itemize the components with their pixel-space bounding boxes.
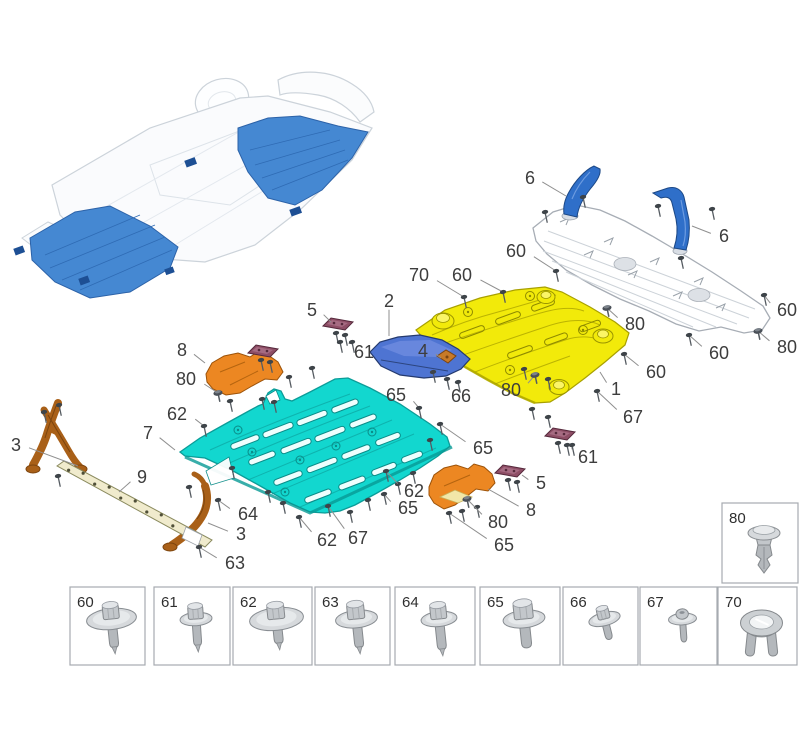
- callout-4[interactable]: 4: [418, 341, 428, 361]
- fastener-box-label: 62: [240, 594, 257, 611]
- leader-line: [542, 182, 566, 196]
- screw-icon: [620, 351, 629, 365]
- screw-icon: [285, 374, 294, 388]
- screw-icon: [544, 414, 553, 428]
- callout-6[interactable]: 6: [719, 226, 729, 246]
- fastener-box-60[interactable]: 60: [70, 587, 145, 665]
- fastener-box-63[interactable]: 63: [315, 587, 390, 665]
- callout-67[interactable]: 67: [623, 407, 643, 427]
- callout-70[interactable]: 70: [409, 265, 429, 285]
- screw-icon: [513, 479, 522, 493]
- screw-icon: [760, 292, 769, 306]
- callout-5[interactable]: 5: [536, 473, 546, 493]
- callout-60[interactable]: 60: [709, 343, 729, 363]
- callout-1[interactable]: 1: [611, 379, 621, 399]
- fastener-box-67[interactable]: 67: [640, 587, 717, 665]
- callout-63[interactable]: 63: [225, 553, 245, 573]
- callout-60[interactable]: 60: [777, 300, 797, 320]
- callout-8[interactable]: 8: [177, 340, 187, 360]
- fastener-box-62[interactable]: 62: [233, 587, 312, 665]
- callout-65[interactable]: 65: [494, 535, 514, 555]
- callout-67[interactable]: 67: [348, 528, 368, 548]
- callout-62[interactable]: 62: [167, 404, 187, 424]
- screw-icon: [568, 442, 577, 456]
- callout-8[interactable]: 8: [526, 500, 536, 520]
- leader-line: [119, 482, 130, 492]
- fastener-box-label: 64: [402, 594, 419, 611]
- screw-icon: [214, 497, 223, 511]
- fastener-box-70[interactable]: 70: [718, 587, 797, 665]
- callout-6[interactable]: 6: [525, 168, 535, 188]
- screw-icon: [336, 339, 345, 353]
- callout-7[interactable]: 7: [143, 423, 153, 443]
- screw-icon: [504, 477, 513, 491]
- leader-line: [600, 372, 607, 383]
- fastener-box-label: 66: [570, 594, 587, 611]
- fastener-box-label: 61: [161, 594, 178, 611]
- screw-icon: [445, 510, 454, 524]
- screw-icon: [226, 398, 235, 412]
- callout-60[interactable]: 60: [646, 362, 666, 382]
- callout-62[interactable]: 62: [317, 530, 337, 550]
- callout-5[interactable]: 5: [307, 300, 317, 320]
- screw-icon: [346, 509, 355, 523]
- callout-64[interactable]: 64: [238, 504, 258, 524]
- callout-65[interactable]: 65: [473, 438, 493, 458]
- callout-61[interactable]: 61: [578, 447, 598, 467]
- fastener-box-64[interactable]: 64: [395, 587, 475, 665]
- leader-line: [488, 489, 519, 506]
- screw-icon: [54, 473, 63, 487]
- fastener-box-61[interactable]: 61: [154, 587, 230, 665]
- part-8-bracket-orange-right: [429, 464, 495, 509]
- screw-icon: [341, 332, 350, 346]
- fastener-box-80[interactable]: 80: [722, 503, 798, 583]
- callout-2[interactable]: 2: [384, 291, 394, 311]
- screw-icon: [654, 203, 663, 217]
- leader-line: [522, 475, 528, 480]
- screw-icon: [308, 365, 317, 379]
- screw-icon: [708, 206, 717, 220]
- part-3-bracket-brown-left: [26, 403, 87, 473]
- callout-3[interactable]: 3: [236, 524, 246, 544]
- screw-icon: [552, 268, 561, 282]
- callout-66[interactable]: 66: [451, 386, 471, 406]
- leader-line: [480, 280, 503, 292]
- leader-line: [160, 438, 175, 450]
- callout-80[interactable]: 80: [625, 314, 645, 334]
- fastener-box-label: 63: [322, 594, 339, 611]
- leader-line: [692, 226, 711, 233]
- screw-icon: [364, 497, 373, 511]
- callout-80[interactable]: 80: [501, 380, 521, 400]
- leader-line: [199, 547, 217, 558]
- screw-icon: [685, 332, 694, 346]
- callout-60[interactable]: 60: [452, 265, 472, 285]
- leader-line: [449, 513, 487, 539]
- screw-icon: [394, 481, 403, 495]
- callout-61[interactable]: 61: [354, 342, 374, 362]
- screw-icon: [554, 440, 563, 454]
- overview-vehicle-underbody: [13, 72, 374, 298]
- callout-65[interactable]: 65: [398, 498, 418, 518]
- callout-80[interactable]: 80: [777, 337, 797, 357]
- screw-icon: [185, 484, 194, 498]
- callout-80[interactable]: 80: [176, 369, 196, 389]
- part-61-clip-purple-right: [545, 428, 575, 456]
- callout-80[interactable]: 80: [488, 512, 508, 532]
- callout-9[interactable]: 9: [137, 467, 147, 487]
- callout-3[interactable]: 3: [11, 435, 21, 455]
- callout-60[interactable]: 60: [506, 241, 526, 261]
- fastener-box-66[interactable]: 66: [563, 587, 638, 665]
- fastener-box-65[interactable]: 65: [480, 587, 560, 665]
- fastener-box-label: 60: [77, 594, 94, 611]
- part-5-clip-purple-right: [495, 465, 525, 493]
- leader-line: [194, 354, 205, 363]
- leader-line: [208, 523, 228, 531]
- fastener-box-label: 67: [647, 594, 664, 611]
- screw-icon: [528, 406, 537, 420]
- part-8-bracket-orange-left: [206, 353, 283, 395]
- fastener-box-label: 65: [487, 594, 504, 611]
- parts-diagram-page: 6660706060806060801672561466658088062739…: [0, 0, 799, 746]
- callout-65[interactable]: 65: [386, 385, 406, 405]
- fastener-box-label: 80: [729, 510, 746, 527]
- leader-line: [324, 315, 331, 322]
- fastener-box-label: 70: [725, 594, 742, 611]
- part-9-sill-strip: [57, 461, 212, 547]
